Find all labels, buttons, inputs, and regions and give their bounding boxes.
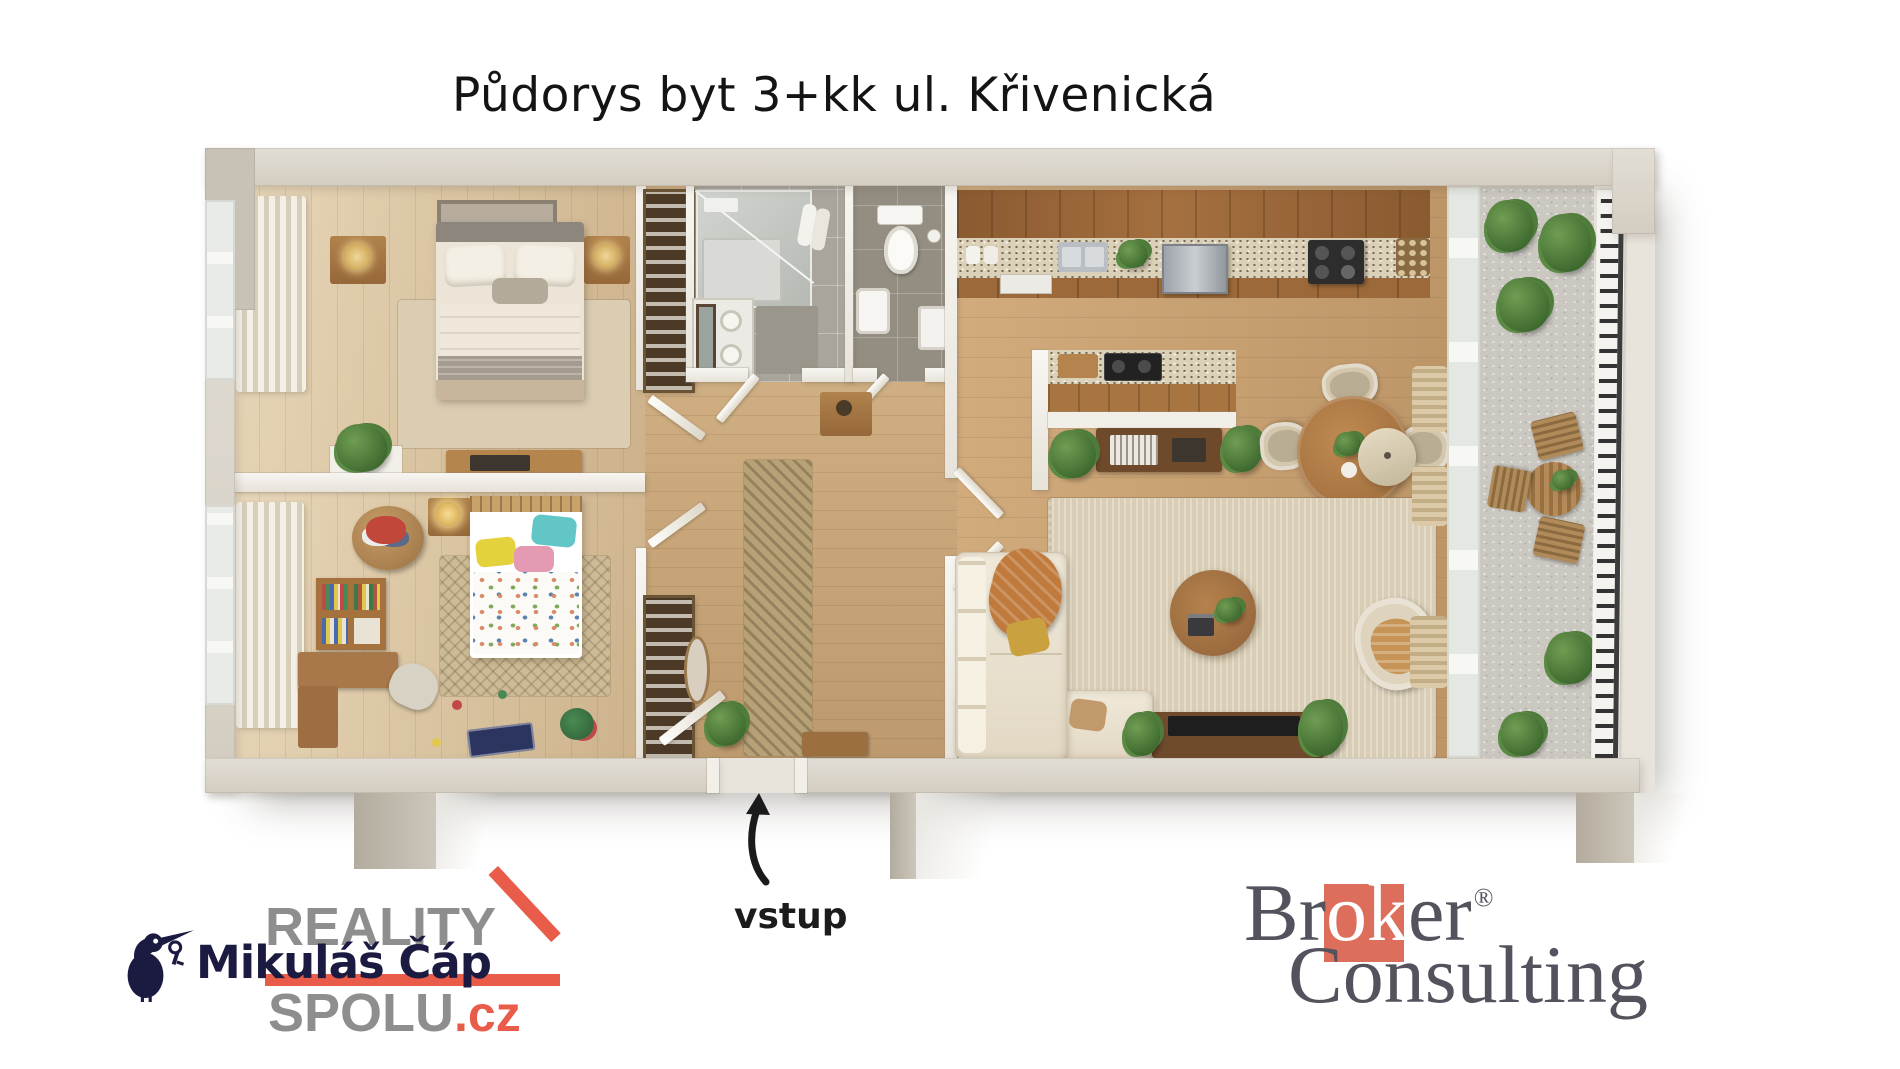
agent-name: Mikuláš Čáp: [196, 936, 491, 989]
bathroom-left-wall: [686, 186, 694, 382]
reality-spolu-agent-logo: REALITY SPOLU.cz Mikuláš Čáp: [100, 888, 620, 1066]
shower: [696, 190, 812, 308]
spolu-word: SPOLU.cz: [268, 986, 521, 1040]
kids-pillow-teal: [531, 514, 578, 548]
entrance-arrow-icon: [736, 792, 782, 886]
footing-right-shadow: [1634, 793, 1690, 863]
outer-wall-top: [205, 148, 1655, 186]
kids-headboard: [470, 496, 582, 512]
spolu-text: SPOLU: [268, 983, 454, 1043]
outer-wall-bottom-right: [797, 758, 1640, 793]
bath-wc-wall: [845, 186, 853, 382]
kids-bookshelf: [316, 578, 386, 650]
sideboard-plant-left: [1050, 430, 1096, 478]
balcony-table: [1526, 462, 1582, 516]
burner: [1112, 360, 1125, 373]
balcony-chair: [1487, 465, 1532, 513]
coffee-table-plant: [1216, 598, 1242, 622]
bed-double: [436, 222, 584, 400]
kitchen-upper-cabinets: [957, 190, 1430, 238]
bed-foot-throw: [436, 380, 584, 400]
vanity-sink: [720, 344, 742, 366]
island-sideboard: [1096, 428, 1222, 472]
bedroom-plant: [336, 424, 388, 472]
stove: [1308, 240, 1364, 284]
shelf-cell: [354, 618, 380, 644]
toilet-paper: [928, 230, 940, 242]
hall-runner-rug: [744, 460, 812, 756]
balcony-window-wall: [1447, 186, 1480, 758]
bath-mat: [756, 306, 818, 374]
pouf-clothes: [366, 516, 406, 544]
living-curtain: [1410, 616, 1448, 688]
registered-mark: ®: [1474, 883, 1494, 912]
stork-with-key-icon: [118, 924, 198, 1002]
cz-tld: .cz: [454, 986, 521, 1042]
living-curtain: [1412, 366, 1448, 432]
entrance-label: vstup: [734, 896, 848, 937]
kitchen-plant: [1118, 240, 1148, 268]
bed-accent-pillow: [492, 278, 548, 304]
bed-headboard: [436, 222, 584, 242]
tv: [1168, 716, 1300, 736]
kids-desk: [298, 652, 398, 688]
balcony-plant: [1498, 278, 1550, 332]
cutting-board: [1058, 354, 1098, 378]
shelf-cell: [354, 584, 380, 610]
footing-right: [1576, 793, 1634, 863]
outer-wall-top-right-return: [1612, 148, 1655, 234]
broker-consulting-logo: Broker® Consulting: [1238, 882, 1688, 1052]
toilet: [878, 206, 922, 224]
consulting-word: Consulting: [1288, 934, 1648, 1016]
vanity-sink: [720, 310, 742, 332]
pendant-stem: [1384, 452, 1391, 459]
lamp-left: [344, 244, 370, 270]
tv-plant-left: [1124, 712, 1160, 756]
island-ledge: [1048, 412, 1236, 428]
hall-mirror: [684, 636, 710, 704]
burner: [1138, 360, 1151, 373]
kids-window: [205, 505, 235, 705]
sofa-pillow-tan: [1068, 698, 1108, 733]
bedroom-window: [205, 200, 235, 380]
bath-bottom-wall-l: [686, 368, 748, 382]
burner: [1315, 265, 1329, 279]
footing-center-shadow: [916, 793, 1012, 879]
kids-curtains: [236, 502, 304, 728]
balcony-plant: [1500, 712, 1544, 756]
kids-bed: [470, 496, 582, 658]
dishwasher: [1000, 274, 1052, 294]
toy: [432, 738, 441, 747]
island-side-wall: [1032, 350, 1048, 490]
toy: [452, 700, 462, 710]
kids-duvet: [473, 572, 579, 654]
shelf-cell: [322, 618, 348, 644]
balcony-plant: [1546, 632, 1594, 684]
footing-left-shadow: [436, 793, 498, 869]
books-row: [1110, 435, 1158, 465]
balcony-railing: [1591, 190, 1625, 758]
kids-desk-return: [298, 686, 338, 748]
burner: [1341, 246, 1355, 260]
entry-door-frame-right: [795, 758, 807, 793]
sideboard-plant-right: [1222, 426, 1262, 472]
bedroom-hall-wall: [636, 186, 646, 390]
vanity-mirror: [696, 304, 716, 376]
kitchen-sink: [1058, 242, 1108, 272]
tv-plant-right: [1300, 700, 1344, 756]
balcony-plant: [1486, 200, 1534, 252]
decor-item: [1172, 438, 1206, 462]
kitchen-jars: [966, 246, 980, 264]
living-curtain: [1412, 466, 1448, 526]
shelf-cell: [322, 584, 348, 610]
kids-hall-wall: [636, 548, 646, 758]
toy: [498, 690, 507, 699]
balcony-plant: [1540, 214, 1592, 272]
wc-bottom-wall-l: [853, 368, 877, 382]
fridge: [1162, 244, 1228, 294]
island-front: [1048, 384, 1236, 412]
hall-living-wall-top: [945, 186, 957, 478]
footing-center: [890, 793, 916, 879]
bedroom-kids-divider-wall: [233, 473, 645, 492]
coffee-table: [1170, 570, 1256, 656]
coffee-table-books: [1188, 618, 1214, 636]
bench-items: [470, 455, 530, 471]
shower-head: [704, 198, 738, 212]
log-basket: [1396, 238, 1430, 276]
hall-console-lamp: [836, 400, 852, 416]
kids-pillow-yellow: [475, 536, 518, 568]
sink-bowl: [1062, 247, 1081, 267]
footing-left: [354, 793, 436, 869]
outer-wall-bottom-left: [205, 758, 717, 793]
burner: [1315, 246, 1329, 260]
kids-lamp: [436, 502, 460, 526]
entry-door-frame-left: [707, 758, 719, 793]
kids-pillow-pink: [514, 546, 554, 572]
wc-sink: [856, 288, 890, 334]
balcony-table-plant: [1552, 470, 1574, 490]
island-cooktop: [1104, 353, 1162, 381]
toilet-bowl: [884, 226, 918, 274]
sink-bowl: [1085, 247, 1104, 267]
burner: [1341, 265, 1355, 279]
shoe-bench: [802, 732, 868, 756]
lamp-right: [594, 244, 618, 268]
kids-toy-plant: [560, 708, 594, 740]
table-plate: [1341, 462, 1357, 478]
bed-blanket: [438, 356, 582, 382]
wc-basin: [918, 306, 948, 350]
table-centerpiece: [1335, 432, 1361, 456]
sofa-back-cushions: [958, 557, 986, 753]
